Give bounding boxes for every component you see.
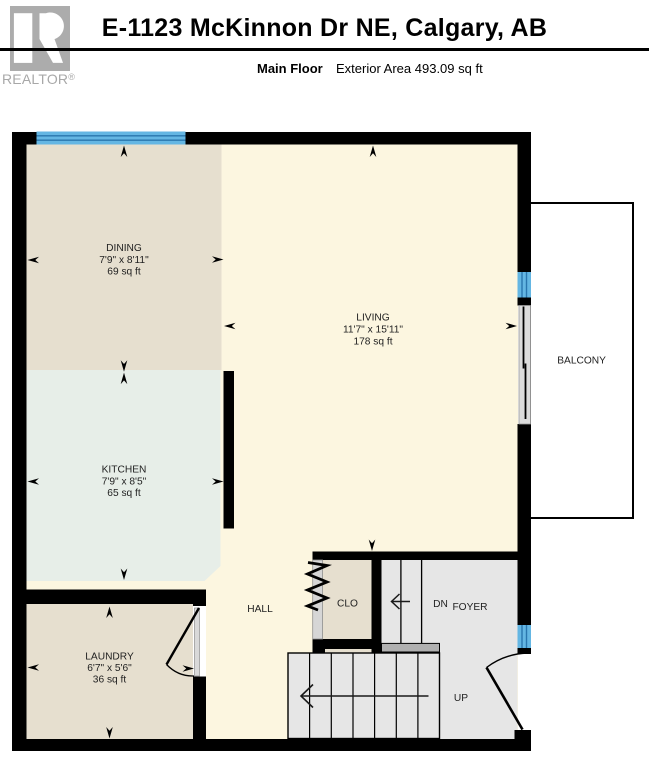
- svg-text:LAUNDRY: LAUNDRY: [85, 652, 134, 663]
- svg-text:65 sq ft: 65 sq ft: [107, 488, 141, 499]
- svg-text:DINING: DINING: [106, 243, 142, 254]
- svg-text:178 sq ft: 178 sq ft: [353, 336, 392, 347]
- svg-text:DN: DN: [433, 599, 448, 610]
- svg-text:BALCONY: BALCONY: [557, 356, 606, 367]
- svg-text:36 sq ft: 36 sq ft: [93, 675, 127, 686]
- svg-text:7'9" x 8'11": 7'9" x 8'11": [99, 255, 149, 266]
- svg-text:FOYER: FOYER: [452, 602, 487, 613]
- svg-text:UP: UP: [454, 693, 468, 704]
- svg-text:7'9" x 8'5": 7'9" x 8'5": [102, 476, 147, 487]
- svg-text:HALL: HALL: [247, 604, 273, 615]
- svg-text:6'7" x 5'6": 6'7" x 5'6": [87, 663, 132, 674]
- svg-text:11'7" x 15'11": 11'7" x 15'11": [343, 325, 403, 336]
- svg-text:69 sq ft: 69 sq ft: [107, 267, 141, 278]
- svg-text:CLO: CLO: [337, 599, 358, 610]
- svg-text:KITCHEN: KITCHEN: [102, 465, 147, 476]
- svg-text:LIVING: LIVING: [356, 313, 389, 324]
